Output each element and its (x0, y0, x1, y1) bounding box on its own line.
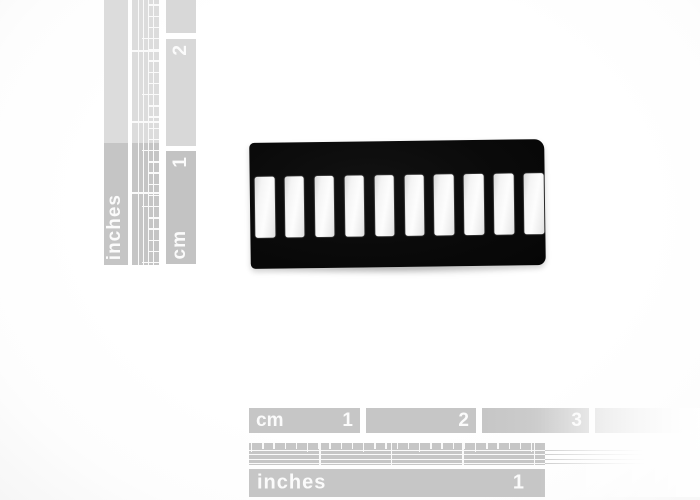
ruler-tick (148, 72, 159, 73)
led-bar-graph-body (249, 139, 546, 269)
ruler-tick (148, 251, 159, 252)
ruler-line (153, 0, 154, 265)
ruler-tick (363, 443, 364, 452)
ruler-tick (453, 443, 454, 449)
bottom-ruler-cm-block-1-2: 2 (366, 408, 476, 433)
ruler-tick (520, 443, 521, 449)
ruler-tick (251, 443, 252, 452)
ruler-tick (148, 60, 159, 61)
ruler-tick (148, 217, 159, 218)
ruler-tick (148, 139, 159, 140)
ruler-line (249, 450, 545, 451)
ruler-tick (486, 443, 487, 449)
ruler-tick (148, 16, 159, 17)
left-ruler-cm-label: cm (170, 230, 189, 259)
ruler-tick (531, 443, 532, 452)
ruler-tick (273, 443, 274, 449)
left-ruler: inches 2 1 cm (104, 0, 196, 265)
bottom-ruler-cm-number-1: 1 (342, 410, 353, 432)
ruler-tick (148, 240, 159, 241)
ruler-tick (296, 443, 297, 449)
ruler-tick (497, 443, 498, 449)
ruler-tick (148, 195, 159, 196)
led-segment (344, 175, 364, 236)
ruler-tick (148, 184, 159, 185)
product-photo: inches 2 1 cm cm 1 2 3 (0, 0, 700, 500)
ruler-tick (462, 443, 464, 465)
left-ruler-inches-strip: inches (104, 0, 128, 265)
bottom-ruler-inches-strip: inches 1 (249, 469, 545, 497)
ruler-tick (352, 443, 353, 449)
ruler-tick (142, 94, 159, 95)
bottom-ruler-inch-number-1: 1 (513, 472, 524, 495)
led-segment (434, 174, 454, 235)
ruler-tick (142, 262, 159, 263)
ruler-tick (374, 443, 375, 449)
ruler-tick (132, 50, 159, 52)
left-ruler-cm-block-1-2: 2 (166, 39, 196, 146)
ruler-tick (307, 443, 308, 452)
bottom-ruler-edge-fade (539, 408, 700, 497)
ruler-tick (142, 150, 159, 151)
ruler-line (249, 454, 545, 455)
ruler-tick (148, 228, 159, 229)
ruler-tick (329, 443, 330, 449)
ruler-tick (341, 443, 342, 449)
bottom-ruler: cm 1 2 3 inches 1 (249, 408, 700, 497)
led-segment (285, 176, 305, 237)
ruler-tick (132, 192, 159, 194)
ruler-line (143, 0, 144, 265)
ruler-tick (464, 443, 465, 449)
ruler-tick (148, 27, 159, 28)
ruler-tick (430, 443, 431, 449)
left-ruler-cm-block-0-1: 1 cm (166, 151, 196, 264)
ruler-tick (148, 105, 159, 106)
led-segment (524, 173, 544, 234)
bottom-ruler-cm-number-2: 2 (458, 410, 469, 432)
ruler-tick (148, 172, 159, 173)
left-ruler-cm-number-1: 1 (171, 156, 190, 168)
led-segment (404, 175, 424, 236)
ruler-tick (148, 116, 159, 117)
ruler-tick (142, 206, 159, 207)
ruler-tick (475, 443, 476, 452)
ruler-tick (534, 443, 536, 465)
ruler-line (249, 463, 545, 464)
ruler-tick (262, 443, 263, 449)
led-segment (374, 175, 394, 236)
ruler-line (148, 0, 149, 265)
ruler-tick (285, 443, 286, 449)
ruler-tick (148, 4, 159, 5)
ruler-tick (397, 443, 398, 449)
ruler-tick (509, 443, 510, 449)
ruler-tick (132, 121, 159, 123)
left-ruler-cm-number-2: 2 (171, 44, 190, 56)
ruler-tick (148, 83, 159, 84)
ruler-tick (385, 443, 386, 449)
ruler-tick (148, 128, 159, 129)
ruler-tick (419, 443, 420, 452)
led-segment (255, 177, 275, 238)
ruler-tick (142, 38, 159, 39)
left-ruler-cm-strip: 2 1 cm (166, 0, 196, 264)
ruler-tick (408, 443, 409, 449)
ruler-tick (441, 443, 442, 449)
led-segment (464, 174, 484, 235)
ruler-tick (148, 161, 159, 162)
bottom-ruler-cm-block-0-1: cm 1 (249, 408, 360, 433)
left-ruler-cm-block-2-3 (166, 0, 196, 33)
ruler-tick (319, 443, 321, 465)
bottom-ruler-inches-label: inches (257, 472, 326, 495)
left-ruler-inches-label: inches (105, 194, 124, 260)
ruler-line (138, 0, 139, 265)
bottom-ruler-cm-label: cm (256, 410, 283, 432)
bottom-ruler-scale-strip (249, 443, 545, 465)
left-ruler-scale-strip (132, 0, 159, 265)
led-segment (314, 176, 334, 237)
ruler-tick (391, 443, 393, 465)
led-segment (494, 173, 514, 234)
ruler-line (249, 459, 545, 460)
